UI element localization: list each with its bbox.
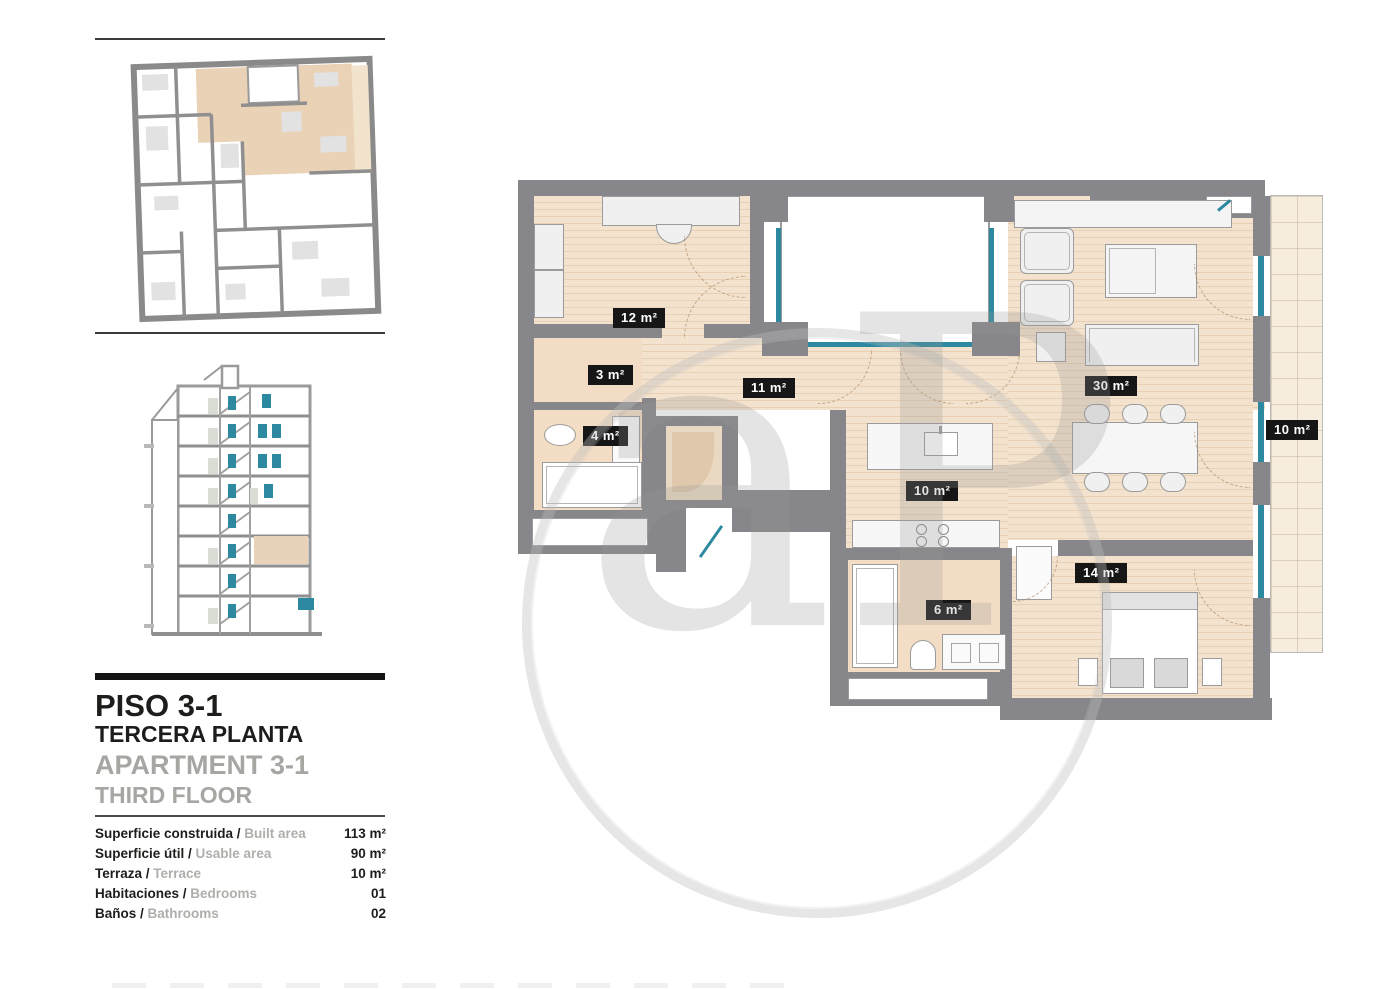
window-right-1 [1258, 256, 1264, 316]
wall-right-3 [1253, 462, 1270, 505]
wall-right-4 [1253, 598, 1270, 700]
building-section-drawing [132, 358, 342, 654]
floorplan-sheet: PISO 3-1 TERCERA PLANTA APARTMENT 3-1 TH… [0, 0, 1400, 989]
dining-chair-3 [1160, 404, 1186, 424]
area-info-row: Superficie útil / Usable area90 m² [95, 846, 386, 866]
section-floor-highlight [254, 536, 308, 564]
area-info-table: Superficie construida / Built area113 m²… [95, 826, 386, 926]
window-right-2 [1258, 402, 1264, 462]
room-label-terrace: 10 m² [1266, 420, 1318, 440]
dining-chair-2 [1122, 404, 1148, 424]
area-info-row: Terraza / Terrace10 m² [95, 866, 386, 886]
desk [602, 196, 740, 226]
info-value: 02 [371, 906, 386, 921]
toilet-1 [544, 424, 576, 446]
wardrobe-upper [534, 224, 564, 270]
mini-floorplan-overview [118, 53, 390, 329]
wall-left [518, 180, 534, 526]
bed-bench-2 [1154, 658, 1188, 688]
window-right-3 [1258, 505, 1264, 598]
page-title-apartment: APARTMENT 3-1 [95, 751, 309, 780]
wall-right-2 [1253, 316, 1270, 402]
page-title-floor: THIRD FLOOR [95, 783, 252, 808]
info-divider [95, 815, 385, 817]
info-value: 113 m² [344, 826, 386, 841]
sideboard-top [1014, 200, 1232, 228]
area-info-row: Habitaciones / Bedrooms01 [95, 886, 386, 906]
info-label-es: Superficie construida / [95, 826, 244, 841]
info-label-es: Baños / [95, 906, 148, 921]
info-label-en: Usable area [196, 846, 272, 861]
info-label-en: Bedrooms [190, 886, 257, 901]
dining-chair-5 [1122, 472, 1148, 492]
info-value: 01 [371, 886, 386, 901]
info-value: 10 m² [351, 866, 386, 881]
title-divider-bar [95, 673, 385, 680]
page-title-planta: TERCERA PLANTA [95, 722, 303, 747]
info-label-en: Built area [244, 826, 306, 841]
info-value: 90 m² [351, 846, 386, 861]
wardrobe-lower [534, 270, 564, 318]
info-label-es: Habitaciones / [95, 886, 190, 901]
info-label-es: Superficie útil / [95, 846, 196, 861]
info-label-en: Terrace [153, 866, 201, 881]
wall-right-1 [1253, 196, 1270, 256]
dining-chair-6 [1160, 472, 1186, 492]
area-info-row: Superficie construida / Built area113 m² [95, 826, 386, 846]
info-label-es: Terraza / [95, 866, 153, 881]
page-title-piso: PISO 3-1 [95, 689, 223, 722]
wall-patio-corner-tr [984, 180, 1014, 222]
wall-patio-corner-tl [764, 180, 788, 222]
watermark-logo: aP [580, 262, 1126, 692]
area-info-row: Baños / Bathrooms02 [95, 906, 386, 926]
info-label-en: Bathrooms [148, 906, 219, 921]
divider-middle [95, 332, 385, 334]
footer-cutoff-text [112, 983, 800, 988]
divider-top [95, 38, 385, 40]
nightstand-2 [1202, 658, 1222, 686]
